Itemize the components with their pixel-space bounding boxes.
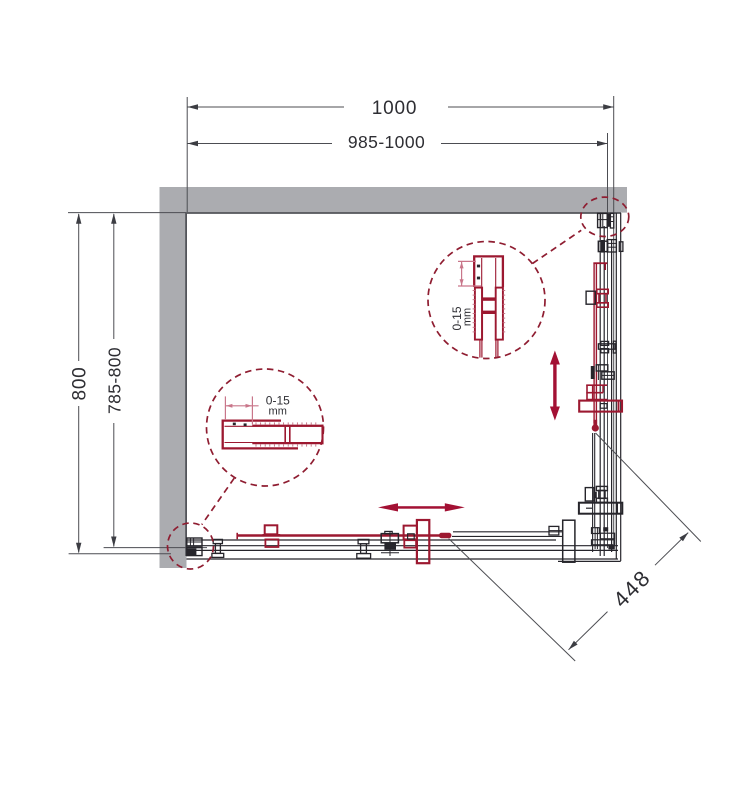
svg-text:1000: 1000 (372, 98, 417, 119)
svg-text:800: 800 (70, 366, 91, 400)
svg-text:785-800: 785-800 (105, 347, 125, 414)
svg-text:985-1000: 985-1000 (348, 132, 425, 152)
svg-text:mm: mm (269, 406, 287, 418)
svg-text:mm: mm (462, 308, 474, 326)
